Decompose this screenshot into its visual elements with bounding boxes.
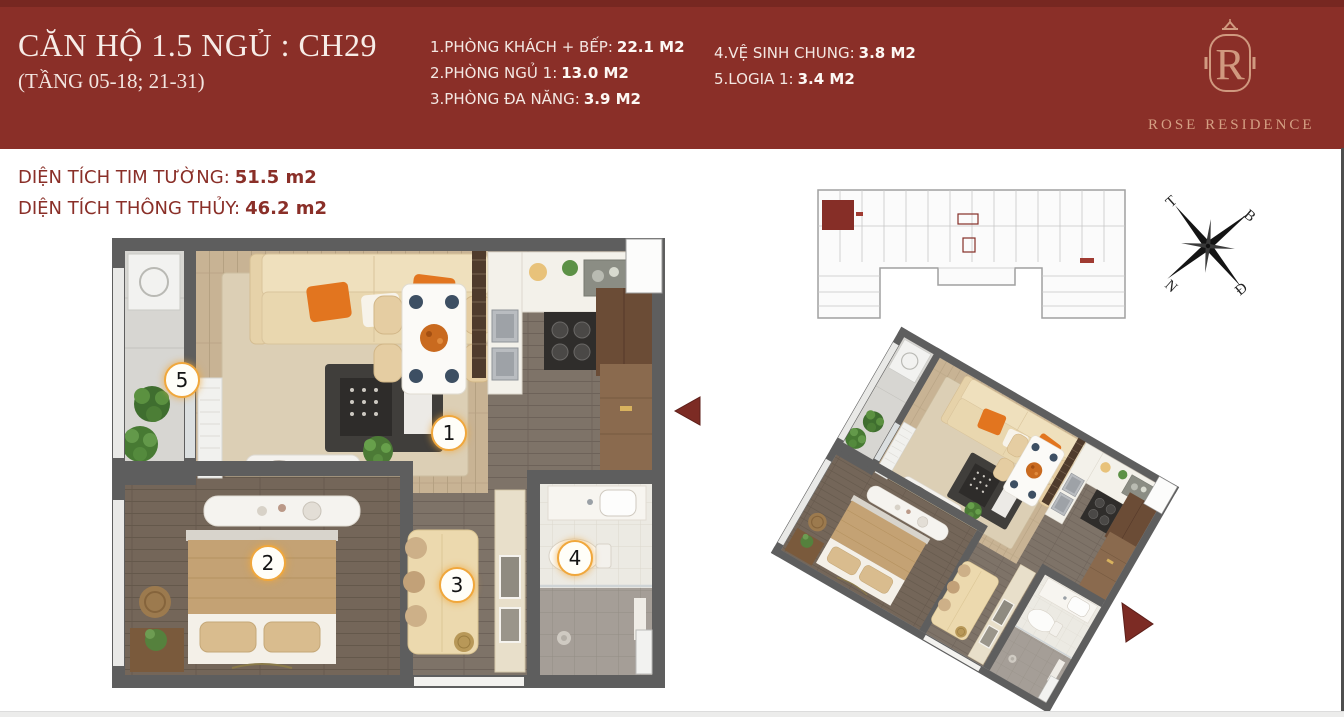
unit-location-highlight <box>822 200 854 230</box>
brand-logo: R ROSE RESIDENCE <box>1148 17 1312 134</box>
legend-item-label: 1.PHÒNG KHÁCH + BẾP: <box>430 38 613 56</box>
svg-text:R: R <box>1215 40 1245 89</box>
area-label: DIỆN TÍCH THÔNG THỦY: <box>18 198 240 219</box>
area-label: DIỆN TÍCH TIM TƯỜNG: <box>18 167 230 188</box>
compass-east-label: Đ <box>1232 280 1251 299</box>
compass-west-label: T <box>1163 193 1181 211</box>
legend-item: 3.PHÒNG ĐA NĂNG:3.9 M2 <box>430 86 685 112</box>
legend-item: 2.PHÒNG NGỦ 1:13.0 M2 <box>430 60 685 86</box>
floor-range: (TẦNG 05-18; 21-31) <box>18 69 205 94</box>
brand-name: ROSE RESIDENCE <box>1148 117 1312 134</box>
room-marker-5-label: 5 <box>176 368 189 392</box>
floor-plan-perspective-view <box>771 327 1179 713</box>
area-line: DIỆN TÍCH TIM TƯỜNG:51.5 m2 <box>18 162 327 193</box>
room-marker-4-label: 4 <box>569 546 582 570</box>
room-legend-col1: 1.PHÒNG KHÁCH + BẾP:22.1 M2 2.PHÒNG NGỦ … <box>430 34 685 112</box>
room-legend-col2: 4.VỆ SINH CHUNG:3.8 M2 5.LOGIA 1:3.4 M2 <box>714 40 916 92</box>
area-summary: DIỆN TÍCH TIM TƯỜNG:51.5 m2 DIỆN TÍCH TH… <box>18 162 327 224</box>
legend-item-value: 3.8 M2 <box>859 44 916 62</box>
brochure-page: T B N Đ CĂN HỘ 1.5 NGỦ : CH29 (TẦNG 05-1… <box>0 0 1344 717</box>
legend-item-label: 5.LOGIA 1: <box>714 70 794 88</box>
room-marker-1-label: 1 <box>443 421 456 445</box>
legend-item-value: 13.0 M2 <box>561 64 629 82</box>
legend-item-value: 22.1 M2 <box>617 38 685 56</box>
legend-item: 4.VỆ SINH CHUNG:3.8 M2 <box>714 40 916 66</box>
brand-monogram-icon: R <box>1184 17 1276 109</box>
page-bottom-strip <box>0 711 1344 717</box>
area-value: 46.2 m2 <box>245 198 327 219</box>
compass-icon: T B N Đ <box>1161 193 1258 299</box>
legend-item: 1.PHÒNG KHÁCH + BẾP:22.1 M2 <box>430 34 685 60</box>
direction-arrow-left-icon <box>675 397 700 425</box>
header-band: CĂN HỘ 1.5 NGỦ : CH29 (TẦNG 05-18; 21-31… <box>0 0 1344 149</box>
legend-item-label: 3.PHÒNG ĐA NĂNG: <box>430 90 580 108</box>
area-line: DIỆN TÍCH THÔNG THỦY:46.2 m2 <box>18 193 327 224</box>
compass-north-label: B <box>1240 207 1258 226</box>
room-marker-3-label: 3 <box>451 573 464 597</box>
room-marker-2-label: 2 <box>262 551 275 575</box>
room-marker-3: 3 <box>439 567 475 603</box>
legend-item-label: 2.PHÒNG NGỦ 1: <box>430 64 557 82</box>
room-marker-4: 4 <box>557 540 593 576</box>
room-marker-1: 1 <box>431 415 467 451</box>
apartment-title: CĂN HỘ 1.5 NGỦ : CH29 <box>18 27 377 64</box>
legend-item-label: 4.VỆ SINH CHUNG: <box>714 44 855 62</box>
building-keyplan <box>818 190 1125 318</box>
compass-south-label: N <box>1161 277 1180 296</box>
legend-item-value: 3.4 M2 <box>798 70 855 88</box>
legend-item-value: 3.9 M2 <box>584 90 641 108</box>
legend-item: 5.LOGIA 1:3.4 M2 <box>714 66 916 92</box>
floor-plan-top-view <box>112 238 665 688</box>
room-marker-2: 2 <box>250 545 286 581</box>
area-value: 51.5 m2 <box>235 167 317 188</box>
direction-arrow-right-icon <box>1122 603 1153 642</box>
room-marker-5: 5 <box>164 362 200 398</box>
